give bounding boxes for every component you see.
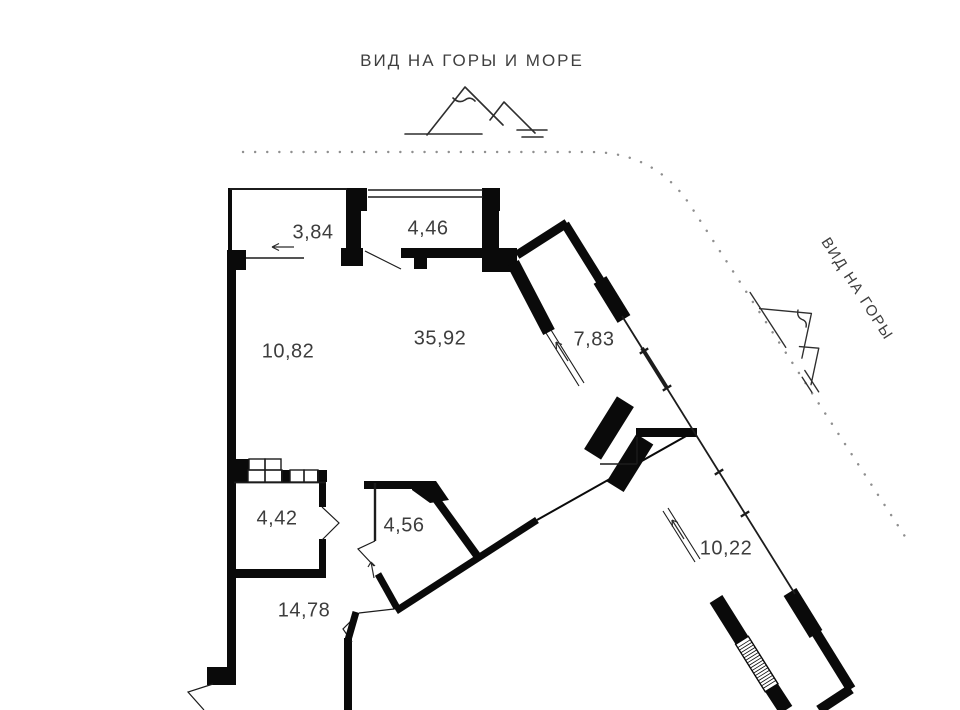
view-caption-top: ВИД НА ГОРЫ И МОРЕ xyxy=(360,51,584,71)
arrow-up-icon xyxy=(368,562,375,578)
walls-diagonal xyxy=(348,223,851,710)
floor-plan-drawing xyxy=(0,0,960,710)
room-area-label: 7,83 xyxy=(574,329,615,352)
walls-orthogonal xyxy=(207,188,517,710)
room-area-label: 10,22 xyxy=(700,538,753,561)
mountains-icon xyxy=(748,271,849,395)
arrow-up-left-icon xyxy=(672,520,684,539)
room-area-label: 35,92 xyxy=(414,328,467,351)
partition-piers xyxy=(584,396,653,492)
arrow-left-icon xyxy=(272,244,294,251)
room-area-label: 14,78 xyxy=(278,600,331,623)
room-area-label: 4,56 xyxy=(384,515,425,538)
room-area-label: 4,42 xyxy=(257,508,298,531)
room-area-label: 4,46 xyxy=(408,218,449,241)
mountains-icon xyxy=(405,87,547,137)
room-area-label: 3,84 xyxy=(293,222,334,245)
floor-plan-canvas: ВИД НА ГОРЫ И МОРЕ ВИД НА ГОРЫ 3,84 4,46… xyxy=(0,0,960,710)
room-area-label: 10,82 xyxy=(262,341,315,364)
hatched-window xyxy=(736,636,778,691)
